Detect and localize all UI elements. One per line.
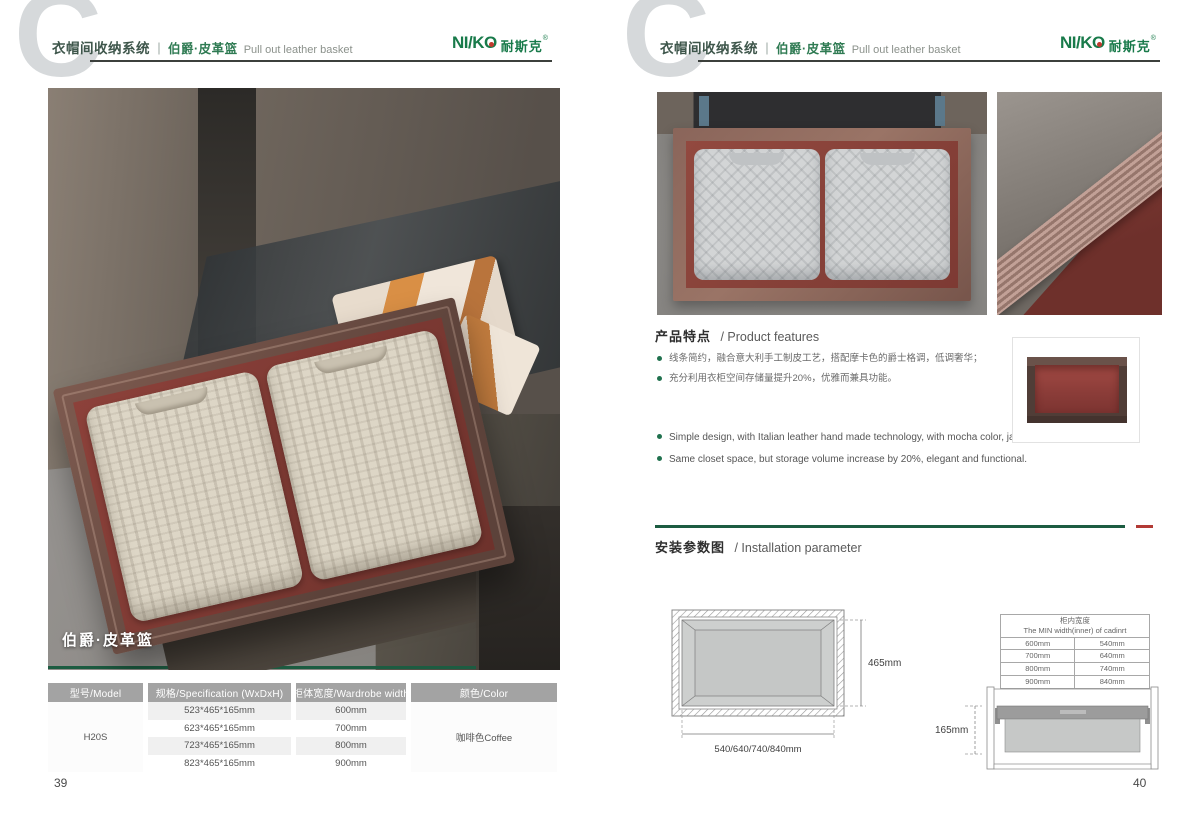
bullet-dot-icon [657,456,662,461]
basket-front-lip [1027,416,1127,423]
column-header: 颜色/Color [411,683,557,702]
list-item: Same closet space, but storage volume in… [657,452,1087,468]
slide-rail [699,96,709,126]
sweater-right [825,149,951,280]
table-cell: 700mm [296,720,406,738]
divider-green [655,525,1125,528]
title-separator: ｜ [153,40,165,57]
logo-o: O [1092,34,1105,53]
table-cell: 523*465*165mm [148,702,291,720]
table-cell: 540mm [1075,637,1150,650]
logo-o-dot-icon [1097,42,1102,47]
page-right: C 衣帽间收纳系统 ｜ 伯爵·皮革篮 Pull out leather bask… [608,0,1200,820]
column-header: 规格/Specification (WxDxH) [148,683,291,702]
table-cell: 640mm [1075,650,1150,663]
model-cell: H20S [48,702,143,772]
system-title: 衣帽间收纳系统 [52,37,150,57]
installation-title: 安装参数图 / Installation parameter [655,537,862,557]
system-title: 衣帽间收纳系统 [660,37,758,57]
product-title-cn: 伯爵·皮革篮 [776,38,846,57]
table-cell: 700mm [1001,650,1075,663]
table-cell: 740mm [1075,663,1150,676]
logo-latin: NI/K [1060,34,1092,53]
table-cell: 600mm [296,702,406,720]
table-cell: 800mm [296,737,406,755]
slide-rail [935,96,945,126]
table-column-width: 柜体宽度/Wardrobe width 600mm 700mm 800mm 90… [296,683,406,772]
basket-frame [673,128,971,301]
product-title-cn: 伯爵·皮革篮 [168,38,238,57]
installation-title-cn: 安装参数图 [655,540,725,555]
page-header-title: 衣帽间收纳系统 ｜ 伯爵·皮革篮 Pull out leather basket [52,37,353,57]
min-width-table-header: 柜内宽度 The MIN width(inner) of cadinrt [1001,615,1150,638]
product-thumbnail-box [1012,337,1140,443]
bullet-dot-icon [657,356,662,361]
nisko-logo: NI/KO 耐斯克 ® [452,34,548,55]
header-rule [698,60,1160,62]
min-width-title-en: The MIN width(inner) of cadinrt [1003,626,1147,636]
table-row: 700mm 640mm [1001,650,1150,663]
installation-title-en: / Installation parameter [734,541,861,555]
page-number: 39 [54,776,67,790]
list-item: 线条简约，融合意大利手工制皮工艺，搭配摩卡色的爵士格调，低调奢华； [657,352,1002,366]
spec-table: 型号/Model H20S 规格/Specification (WxDxH) 5… [48,683,557,772]
features-title: 产品特点 / Product features [655,326,819,346]
product-title-en: Pull out leather basket [244,44,353,56]
height-dimension-label: 165mm [935,725,968,736]
divider-red [1136,525,1153,528]
feature-bullets-chinese: 线条简约，融合意大利手工制皮工艺，搭配摩卡色的爵士格调，低调奢华； 充分利用衣柜… [657,352,1002,393]
features-title-cn: 产品特点 [655,329,711,344]
top-view-diagram: 465mm 540/640/740/840mm [658,596,908,764]
sweaters [694,149,950,280]
nisko-logo: NI/KO 耐斯克 ® [1060,34,1156,55]
catalog-spread: C 衣帽间收纳系统 ｜ 伯爵·皮革篮 Pull out leather bask… [0,0,1200,820]
bullet-text: Same closet space, but storage volume in… [669,452,1027,468]
registered-mark: ® [1151,35,1156,42]
table-row: 800mm 740mm [1001,663,1150,676]
basket-thumbnail [1027,357,1127,423]
sweater-collar [860,153,915,165]
title-separator: ｜ [761,40,773,57]
logo-chinese: 耐斯克 [501,36,543,55]
product-title-en: Pull out leather basket [852,44,961,56]
column-header: 型号/Model [48,683,143,702]
logo-o-dot-icon [489,42,494,47]
table-cell: 900mm [296,755,406,773]
logo-chinese: 耐斯克 [1109,36,1151,55]
sweater-collar [729,153,784,165]
sweater-left [694,149,820,280]
page-number: 40 [1133,776,1146,790]
hero-photo: 伯爵·皮革篮 [48,88,560,670]
color-cell: 咖啡色Coffee [411,702,557,772]
column-header: 柜体宽度/Wardrobe width [296,683,406,702]
bullet-dot-icon [657,376,662,381]
section-divider [655,525,1165,528]
bullet-text: 线条简约，融合意大利手工制皮工艺，搭配摩卡色的爵士格调，低调奢华； [669,352,983,366]
table-cell: 800mm [1001,663,1075,676]
features-title-en: / Product features [720,330,819,344]
logo-latin: NI/K [452,34,484,53]
width-dimension-label: 540/640/740/840mm [714,744,801,755]
basket-corner-detail-photo [997,92,1162,315]
photo-caption: 伯爵·皮革篮 [62,629,154,650]
bullet-text: Simple design, with Italian leather hand… [669,430,1057,446]
list-item: 充分利用衣柜空间存储量提升20%，优雅而兼具功能。 [657,372,1002,386]
basket-leather-interior [1035,365,1119,413]
depth-dimension-label: 465mm [868,658,901,669]
table-row: 600mm 540mm [1001,637,1150,650]
page-left: C 衣帽间收纳系统 ｜ 伯爵·皮革篮 Pull out leather bask… [0,0,600,820]
table-cell: 823*465*165mm [148,755,291,773]
side-view-diagram: 165mm [935,682,1170,774]
min-width-table: 柜内宽度 The MIN width(inner) of cadinrt 600… [1000,614,1150,689]
registered-mark: ® [543,35,548,42]
table-column-spec: 规格/Specification (WxDxH) 523*465*165mm 6… [148,683,291,772]
page-header-title: 衣帽间收纳系统 ｜ 伯爵·皮革篮 Pull out leather basket [660,37,961,57]
header-rule [90,60,552,62]
table-column-color: 颜色/Color 咖啡色Coffee [411,683,557,772]
min-width-title-cn: 柜内宽度 [1003,616,1147,626]
bullet-dot-icon [657,434,662,439]
bullet-text: 充分利用衣柜空间存储量提升20%，优雅而兼具功能。 [669,372,897,386]
table-column-model: 型号/Model H20S [48,683,143,772]
table-cell: 600mm [1001,637,1075,650]
table-cell: 623*465*165mm [148,720,291,738]
table-cell: 723*465*165mm [148,737,291,755]
logo-o: O [484,34,497,53]
basket-top-view-photo [657,92,987,315]
